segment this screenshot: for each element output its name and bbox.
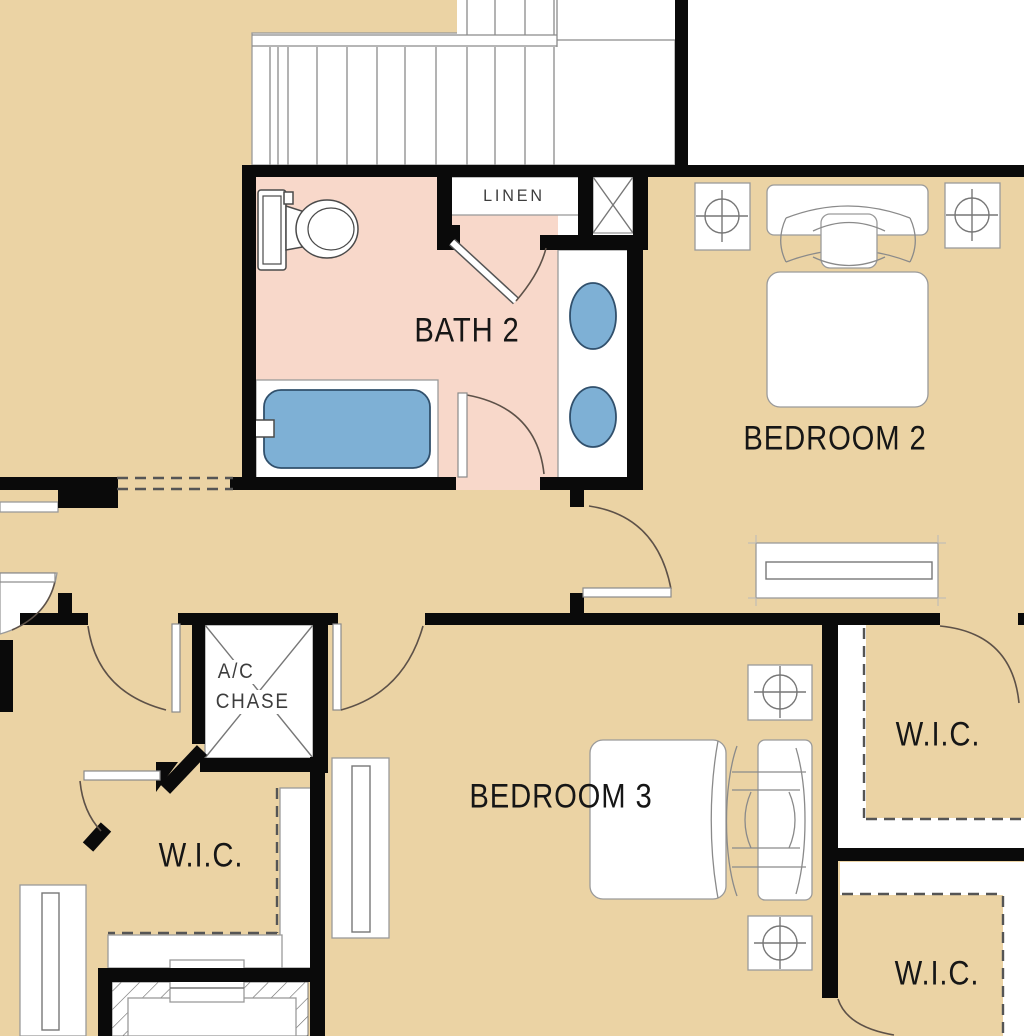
sink-icon xyxy=(570,387,616,447)
bedroom3-label: BEDROOM 3 xyxy=(469,778,652,817)
floor-strip-above-stairs xyxy=(246,0,457,34)
sink-icon xyxy=(570,283,616,349)
cased-opening-left xyxy=(0,502,58,512)
dresser xyxy=(748,535,946,606)
nightstand xyxy=(695,183,750,250)
bedroom3-bed xyxy=(590,740,812,900)
bedroom2-label: BEDROOM 2 xyxy=(743,420,926,459)
wic-lower-right-label: W.I.C. xyxy=(895,955,980,994)
ac-chase-label-line2: CHASE xyxy=(213,690,293,714)
wic-left-label: W.I.C. xyxy=(159,837,244,876)
linen-label: LINEN xyxy=(483,186,545,206)
wic-upper-right-label: W.I.C. xyxy=(896,716,981,755)
bedroom2-bed xyxy=(767,185,928,407)
dresser xyxy=(20,885,86,1036)
dresser xyxy=(332,758,389,938)
left-edge-door-leaf xyxy=(0,573,55,582)
wic-lower-right-shelf-top xyxy=(840,862,1024,895)
bedroom2-door-leaf xyxy=(583,588,671,597)
wic-left-shelf-right xyxy=(280,788,312,968)
nightstand xyxy=(748,916,812,970)
hall-floor-upper-left xyxy=(0,0,252,490)
ac-chase-label-line1: A/C xyxy=(215,660,257,684)
wic-upper-right-shelf-left xyxy=(838,625,866,848)
stair-lower-flight xyxy=(252,33,675,165)
nightstand xyxy=(945,183,1000,248)
stair-void-inner xyxy=(128,998,296,1036)
bath2-entry-door-leaf xyxy=(458,393,467,477)
vanity-sinks xyxy=(558,250,628,480)
bathtub-icon xyxy=(254,380,438,480)
left-room-door-leaf xyxy=(172,624,180,712)
bath2-label: BATH 2 xyxy=(414,312,519,351)
wic-left-door-leaf xyxy=(84,771,160,780)
nightstand xyxy=(748,665,812,720)
wic-lower-right-shelf-right xyxy=(1003,895,1024,1036)
wic-upper-right-shelf-bottom xyxy=(838,818,1024,848)
floor-plan: BATH 2 BEDROOM 2 BEDROOM 3 W.I.C. W.I.C.… xyxy=(0,0,1024,1036)
bedroom3-door-leaf xyxy=(333,624,341,710)
stair-upper-flight xyxy=(457,0,675,40)
floor-plan-drawing xyxy=(0,0,1024,1036)
